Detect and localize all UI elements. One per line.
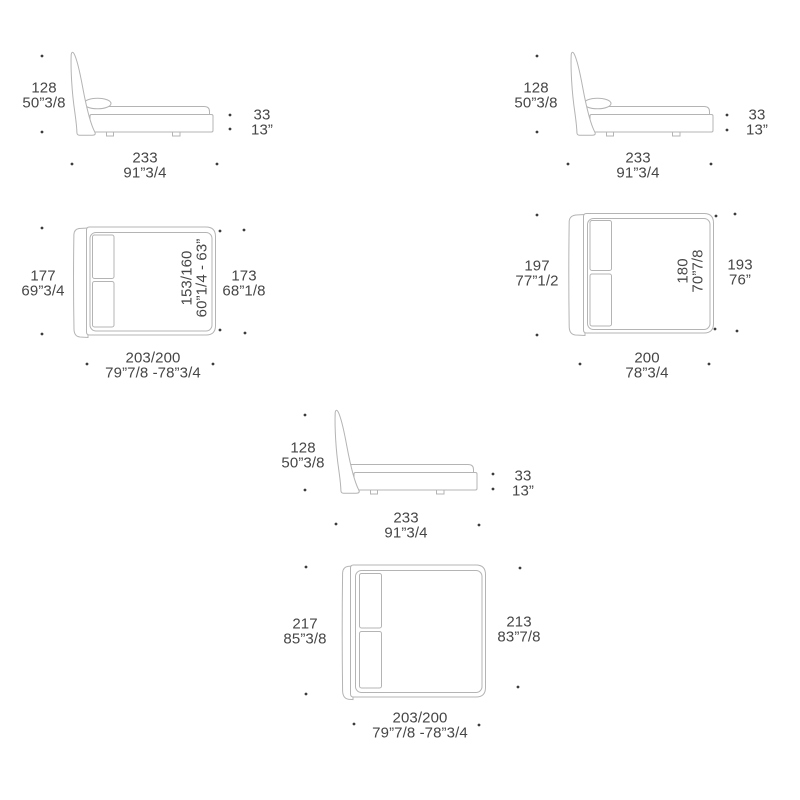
dim-base-height: 33 13”	[251, 109, 273, 138]
dim-value-in: 83”7/8	[497, 630, 540, 645]
dim-bed-length: 203/200 79”7/8 -78”3/4	[372, 712, 468, 741]
dim-value-in: 85”3/8	[283, 632, 326, 647]
pillow	[360, 632, 382, 689]
dim-value-in: 50”3/8	[22, 96, 65, 111]
dim-frame-width: 213 83”7/8	[497, 616, 540, 645]
dim-value-in: 91”3/4	[384, 526, 427, 541]
pillow	[360, 574, 382, 629]
bed-frame-side	[590, 115, 713, 133]
pillow	[93, 235, 115, 279]
bed-top-view-mid-left	[41, 227, 247, 366]
dim-base-height: 33 13”	[512, 470, 534, 499]
dim-headboard-height: 128 50”3/8	[281, 442, 324, 471]
dim-value-in: 13”	[746, 123, 768, 138]
bed-frame-side	[354, 473, 477, 491]
dim-headboard-height: 128 50”3/8	[514, 82, 557, 111]
dim-value-in: 50”3/8	[514, 96, 557, 111]
pillow	[590, 274, 612, 326]
bed-top-view-mid-right	[536, 213, 739, 366]
dim-value-in: 91”3/4	[616, 166, 659, 181]
dim-value-in: 70”7/8	[691, 249, 706, 292]
pillow	[590, 221, 612, 271]
dim-value-in: 13”	[251, 123, 273, 138]
headboard-top	[569, 215, 585, 336]
dim-bed-length: 233 91”3/4	[616, 152, 659, 181]
dim-mattress-width: 153/160 60”1/4 - 63”	[181, 239, 210, 318]
pillow	[84, 98, 111, 109]
dim-bed-length: 203/200 79”7/8 -78”3/4	[105, 352, 201, 381]
dim-value-in: 60”1/4 - 63”	[195, 239, 210, 318]
dim-value-in: 13”	[512, 484, 534, 499]
bed-side-view-top-left	[41, 52, 232, 165]
dim-bed-length: 233 91”3/4	[384, 512, 427, 541]
dim-value-in: 77”1/2	[515, 274, 558, 289]
dim-value-in: 76”	[727, 273, 752, 288]
dim-value-in: 78”3/4	[625, 366, 668, 381]
bed-dimension-diagram	[0, 0, 800, 800]
dim-headboard-height: 128 50”3/8	[22, 82, 65, 111]
dim-value-in: 68”1/8	[222, 284, 265, 299]
dim-base-height: 33 13”	[746, 109, 768, 138]
headboard-top	[74, 228, 88, 338]
dim-value-in: 79”7/8 -78”3/4	[105, 366, 201, 381]
bed-side-view-top-right	[536, 52, 729, 165]
dim-bed-length: 233 91”3/4	[123, 152, 166, 181]
dim-value-in: 79”7/8 -78”3/4	[372, 726, 468, 741]
dimension-sheet: 128 50”3/8 33 13” 233 91”3/4 128 50”3/8 …	[0, 0, 800, 800]
dim-overall-width: 217 85”3/8	[283, 618, 326, 647]
dim-value-in: 69”3/4	[21, 284, 64, 299]
dim-overall-width: 197 77”1/2	[515, 260, 558, 289]
dim-frame-width: 193 76”	[727, 259, 752, 288]
bed-frame-side	[90, 115, 213, 133]
dim-mattress-width: 180 70”7/8	[677, 249, 706, 292]
dim-value-in: 91”3/4	[123, 166, 166, 181]
pillow	[584, 98, 611, 109]
dim-frame-width: 173 68”1/8	[222, 270, 265, 299]
bed-top-view-bottom	[305, 565, 522, 726]
dim-value-in: 50”3/8	[281, 456, 324, 471]
dim-bed-length: 200 78”3/4	[625, 352, 668, 381]
pillow	[93, 282, 115, 328]
dim-overall-width: 177 69”3/4	[21, 270, 64, 299]
